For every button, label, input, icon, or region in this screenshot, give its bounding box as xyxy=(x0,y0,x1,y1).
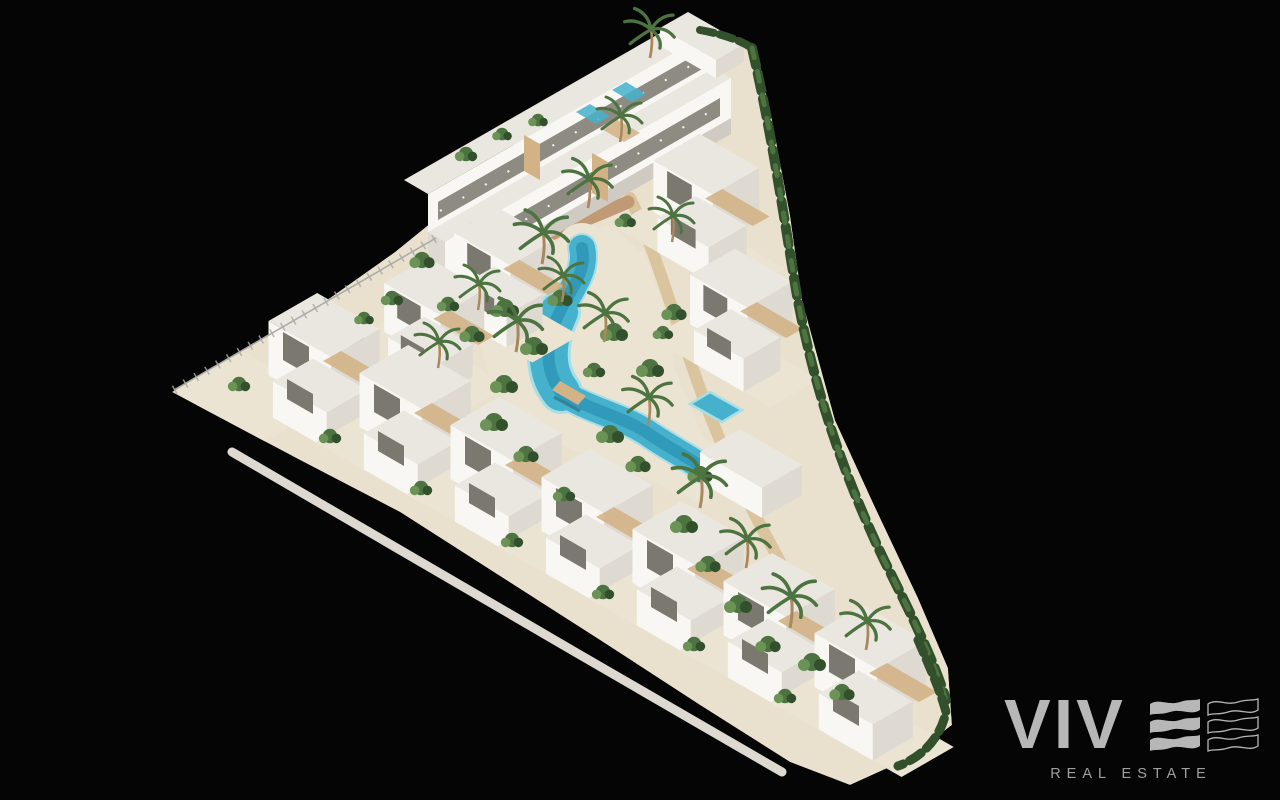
development-aerial-render: VIV REAL ESTATE xyxy=(0,0,1280,800)
triple-wave-e-filled-icon xyxy=(1150,699,1200,751)
brand-wordmark: VIV xyxy=(1004,685,1126,763)
screenshot-root: VIV REAL ESTATE xyxy=(0,0,1280,800)
brand-tagline: REAL ESTATE xyxy=(1050,766,1212,782)
